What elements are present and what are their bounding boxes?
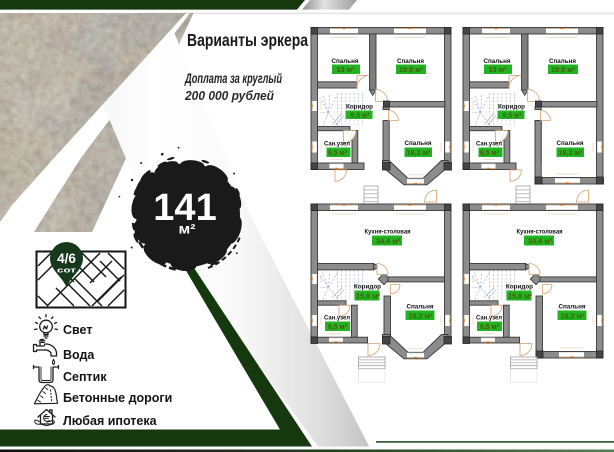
svg-text:9,5 м²: 9,5 м² — [503, 113, 523, 120]
svg-text:Сан.узел: Сан.узел — [476, 141, 502, 148]
svg-text:13 м²: 13 м² — [489, 67, 508, 74]
svg-text:19,9 м²: 19,9 м² — [551, 67, 576, 74]
svg-text:16,2 м²: 16,2 м² — [409, 314, 434, 321]
svg-text:34,4 м²: 34,4 м² — [528, 239, 553, 246]
svg-text:6,5 м²: 6,5 м² — [480, 324, 500, 331]
svg-text:6,5 м²: 6,5 м² — [328, 150, 348, 157]
svg-text:Кухня-столовая: Кухня-столовая — [365, 229, 411, 236]
svg-text:Сан.узел: Сан.узел — [324, 315, 350, 322]
svg-text:Спальня: Спальня — [405, 140, 432, 147]
svg-text:Коридор: Коридор — [498, 104, 525, 111]
svg-text:Сан.узел: Сан.узел — [476, 315, 502, 322]
svg-text:34,4 м²: 34,4 м² — [376, 239, 401, 246]
svg-text:6,5 м²: 6,5 м² — [328, 324, 348, 331]
svg-text:Доплата за круглый: Доплата за круглый — [184, 71, 282, 86]
svg-text:19,9 м²: 19,9 м² — [399, 67, 424, 74]
svg-text:Любая ипотека: Любая ипотека — [63, 414, 158, 428]
svg-text:Спальня: Спальня — [397, 58, 424, 65]
svg-text:6,5 м²: 6,5 м² — [480, 150, 500, 157]
svg-text:13 м²: 13 м² — [337, 67, 356, 74]
svg-text:Спальня: Спальня — [549, 58, 576, 65]
svg-text:Вода: Вода — [63, 348, 95, 362]
svg-text:Спальня: Спальня — [559, 304, 586, 311]
svg-text:16,2 м²: 16,2 м² — [559, 150, 584, 157]
svg-text:16,2 м²: 16,2 м² — [407, 150, 432, 157]
svg-text:Спальня: Спальня — [407, 304, 434, 311]
svg-text:Спальня: Спальня — [557, 140, 584, 147]
svg-text:15,6 м²: 15,6 м² — [508, 294, 533, 301]
svg-text:Свет: Свет — [63, 323, 92, 337]
svg-text:Сан.узел: Сан.узел — [324, 141, 350, 148]
svg-text:9,5 м²: 9,5 м² — [351, 113, 371, 120]
svg-text:Спальня: Спальня — [332, 58, 359, 65]
svg-text:15,6 м²: 15,6 м² — [356, 294, 381, 301]
svg-text:16,2 м²: 16,2 м² — [561, 314, 586, 321]
svg-text:Бетонные дороги: Бетонные дороги — [63, 391, 172, 405]
svg-text:Коридор: Коридор — [346, 104, 373, 111]
svg-text:Спальня: Спальня — [484, 58, 511, 65]
svg-text:Септик: Септик — [63, 370, 107, 384]
svg-text:Кухня-столовая: Кухня-столовая — [517, 229, 563, 236]
svg-text:Коридор: Коридор — [354, 284, 381, 291]
svg-text:м²: м² — [179, 222, 197, 237]
svg-text:Варианты эркера: Варианты эркера — [187, 30, 308, 50]
svg-text:сот: сот — [57, 266, 76, 275]
svg-text:4/6: 4/6 — [57, 251, 76, 266]
svg-text:200 000 рублей: 200 000 рублей — [184, 88, 274, 103]
svg-text:Коридор: Коридор — [506, 284, 533, 291]
